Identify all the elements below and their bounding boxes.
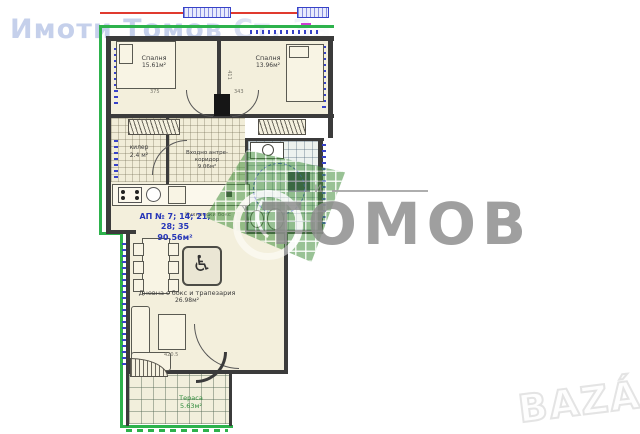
closet-label: килер 2.4 м² — [116, 144, 162, 159]
shaft-column — [214, 94, 230, 116]
kitchen-sink — [146, 187, 161, 202]
dim-ticks-top-right — [250, 30, 320, 34]
dim-343: 343 — [234, 89, 244, 95]
bedroom-left-label: Спалня 15.61м² — [124, 54, 184, 70]
wall-terrace-left — [126, 374, 129, 426]
chair — [168, 243, 179, 256]
coffee-table — [158, 314, 186, 350]
dimension-box-top-left — [183, 7, 231, 18]
green-outline-left-upper — [99, 25, 102, 235]
terrace-label: Тераса 5.63м² — [168, 394, 214, 411]
room-area: 13.96м² — [238, 62, 298, 70]
room-name: Спалня — [124, 54, 184, 62]
room-area: 15.61м² — [124, 62, 184, 70]
dim-411: 411 — [226, 70, 232, 80]
wall-terrace-right — [229, 374, 232, 426]
watermark-agency-name: ТОМОВ — [262, 190, 532, 258]
chair — [133, 243, 144, 256]
room-area: 2.4 м² — [116, 152, 162, 160]
wall-right-upper — [328, 36, 333, 138]
watermark-portal-logo: BAZÁR — [516, 369, 640, 432]
dim-420: 420.5 — [164, 352, 178, 358]
dining-table — [142, 238, 170, 294]
room-name: килер — [116, 144, 162, 152]
dim-375: 375 — [150, 89, 160, 95]
room-name: Тераса — [168, 394, 214, 402]
wardrobe-right-bedroom — [258, 119, 306, 135]
dishwasher — [168, 186, 186, 204]
green-dashed-bottom — [126, 429, 228, 432]
wall-bathroom-top — [245, 138, 324, 141]
room-name: Дневна с бокс и трапезария — [126, 289, 248, 297]
room-name: Спалня — [238, 54, 298, 62]
dimension-box-top-right — [297, 7, 329, 18]
wardrobe-left-bedroom — [128, 119, 180, 135]
stove — [118, 187, 142, 203]
wall-left-upper — [106, 36, 111, 234]
green-outline-top — [101, 25, 334, 28]
chair — [133, 261, 144, 274]
floorplan-screenshot: Имоти Томов Ст. Заг — [0, 0, 640, 434]
living-room-label: Дневна с бокс и трапезария 26.98м² — [126, 289, 248, 305]
room-area: 26.98м² — [126, 297, 248, 305]
room-area: 5.63м² — [168, 402, 214, 410]
bedroom-right-label: Спалня 13.96м² — [238, 54, 298, 70]
green-outline-bottom — [120, 425, 233, 428]
chair — [168, 261, 179, 274]
